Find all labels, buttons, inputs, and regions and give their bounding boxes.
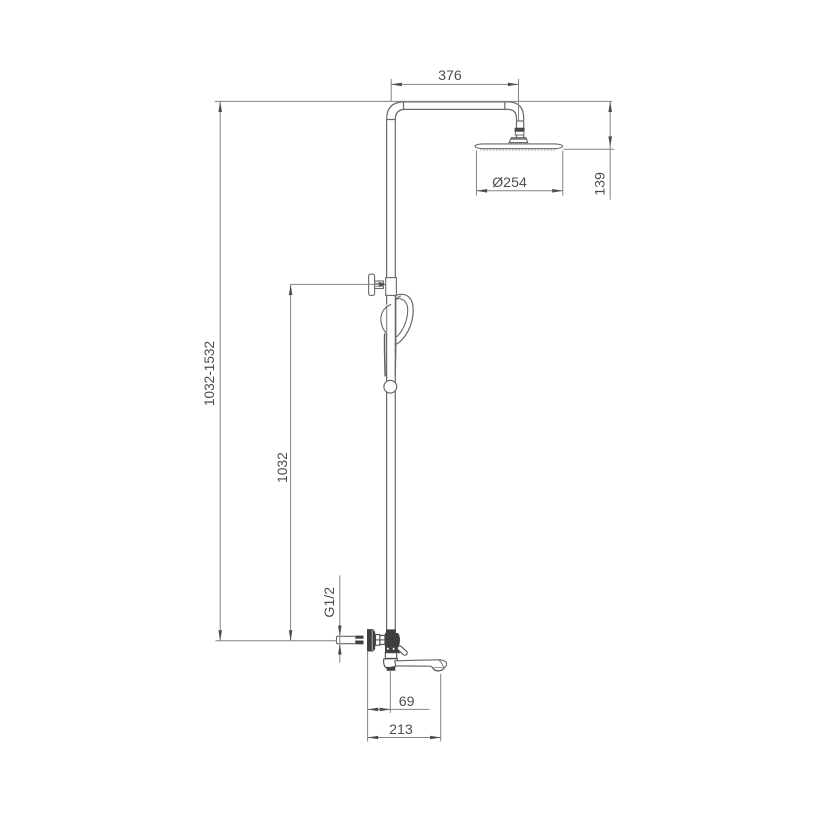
svg-text:213: 213 [389,722,413,738]
svg-text:69: 69 [399,694,415,710]
svg-text:Ø254: Ø254 [492,175,527,191]
svg-text:1032: 1032 [275,452,290,483]
svg-text:376: 376 [438,68,462,84]
svg-text:G1/2: G1/2 [322,587,338,618]
svg-text:139: 139 [593,172,609,196]
svg-text:1032-1532: 1032-1532 [202,341,217,406]
